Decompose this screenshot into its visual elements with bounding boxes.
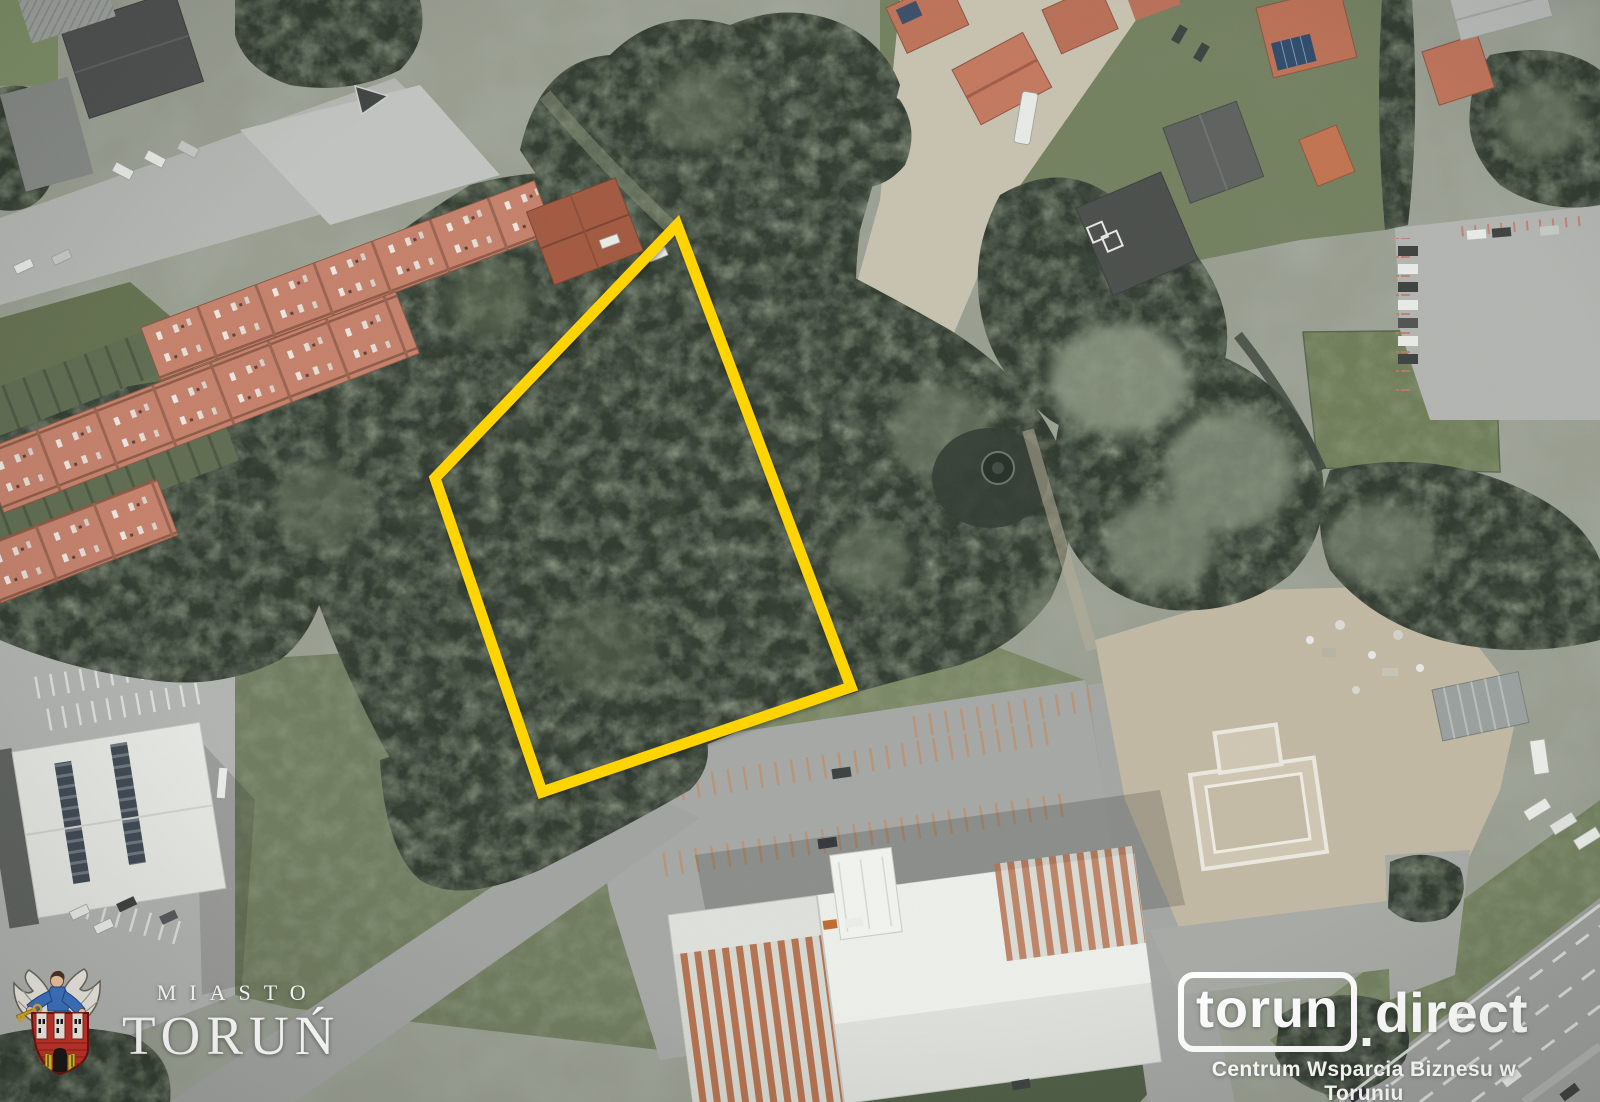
aerial-map: MIASTO TORUŃ torun . direct Centrum Wspa…	[0, 0, 1600, 1102]
shield-castle	[32, 1013, 88, 1074]
city-logo-text: MIASTO TORUŃ	[122, 980, 340, 1063]
business-center-logo: torun . direct Centrum Wsparcia Biznesu …	[1178, 972, 1550, 1102]
brand-dot: .	[1359, 1004, 1374, 1053]
white-towers	[36, 1013, 83, 1039]
brand-tagline: Centrum Wsparcia Biznesu w Toruniu	[1178, 1058, 1550, 1102]
city-logo-top-text: MIASTO	[122, 980, 340, 1006]
city-logo: MIASTO TORUŃ	[8, 956, 340, 1098]
business-center-wordmark: torun . direct	[1178, 972, 1550, 1052]
brand-boxed-text: torun	[1178, 972, 1357, 1052]
city-logo-name: TORUŃ	[122, 1008, 340, 1063]
aerial-photo	[0, 0, 1600, 1102]
brand-suffix-text: direct	[1375, 980, 1528, 1045]
torun-coat-of-arms-icon	[8, 956, 108, 1098]
